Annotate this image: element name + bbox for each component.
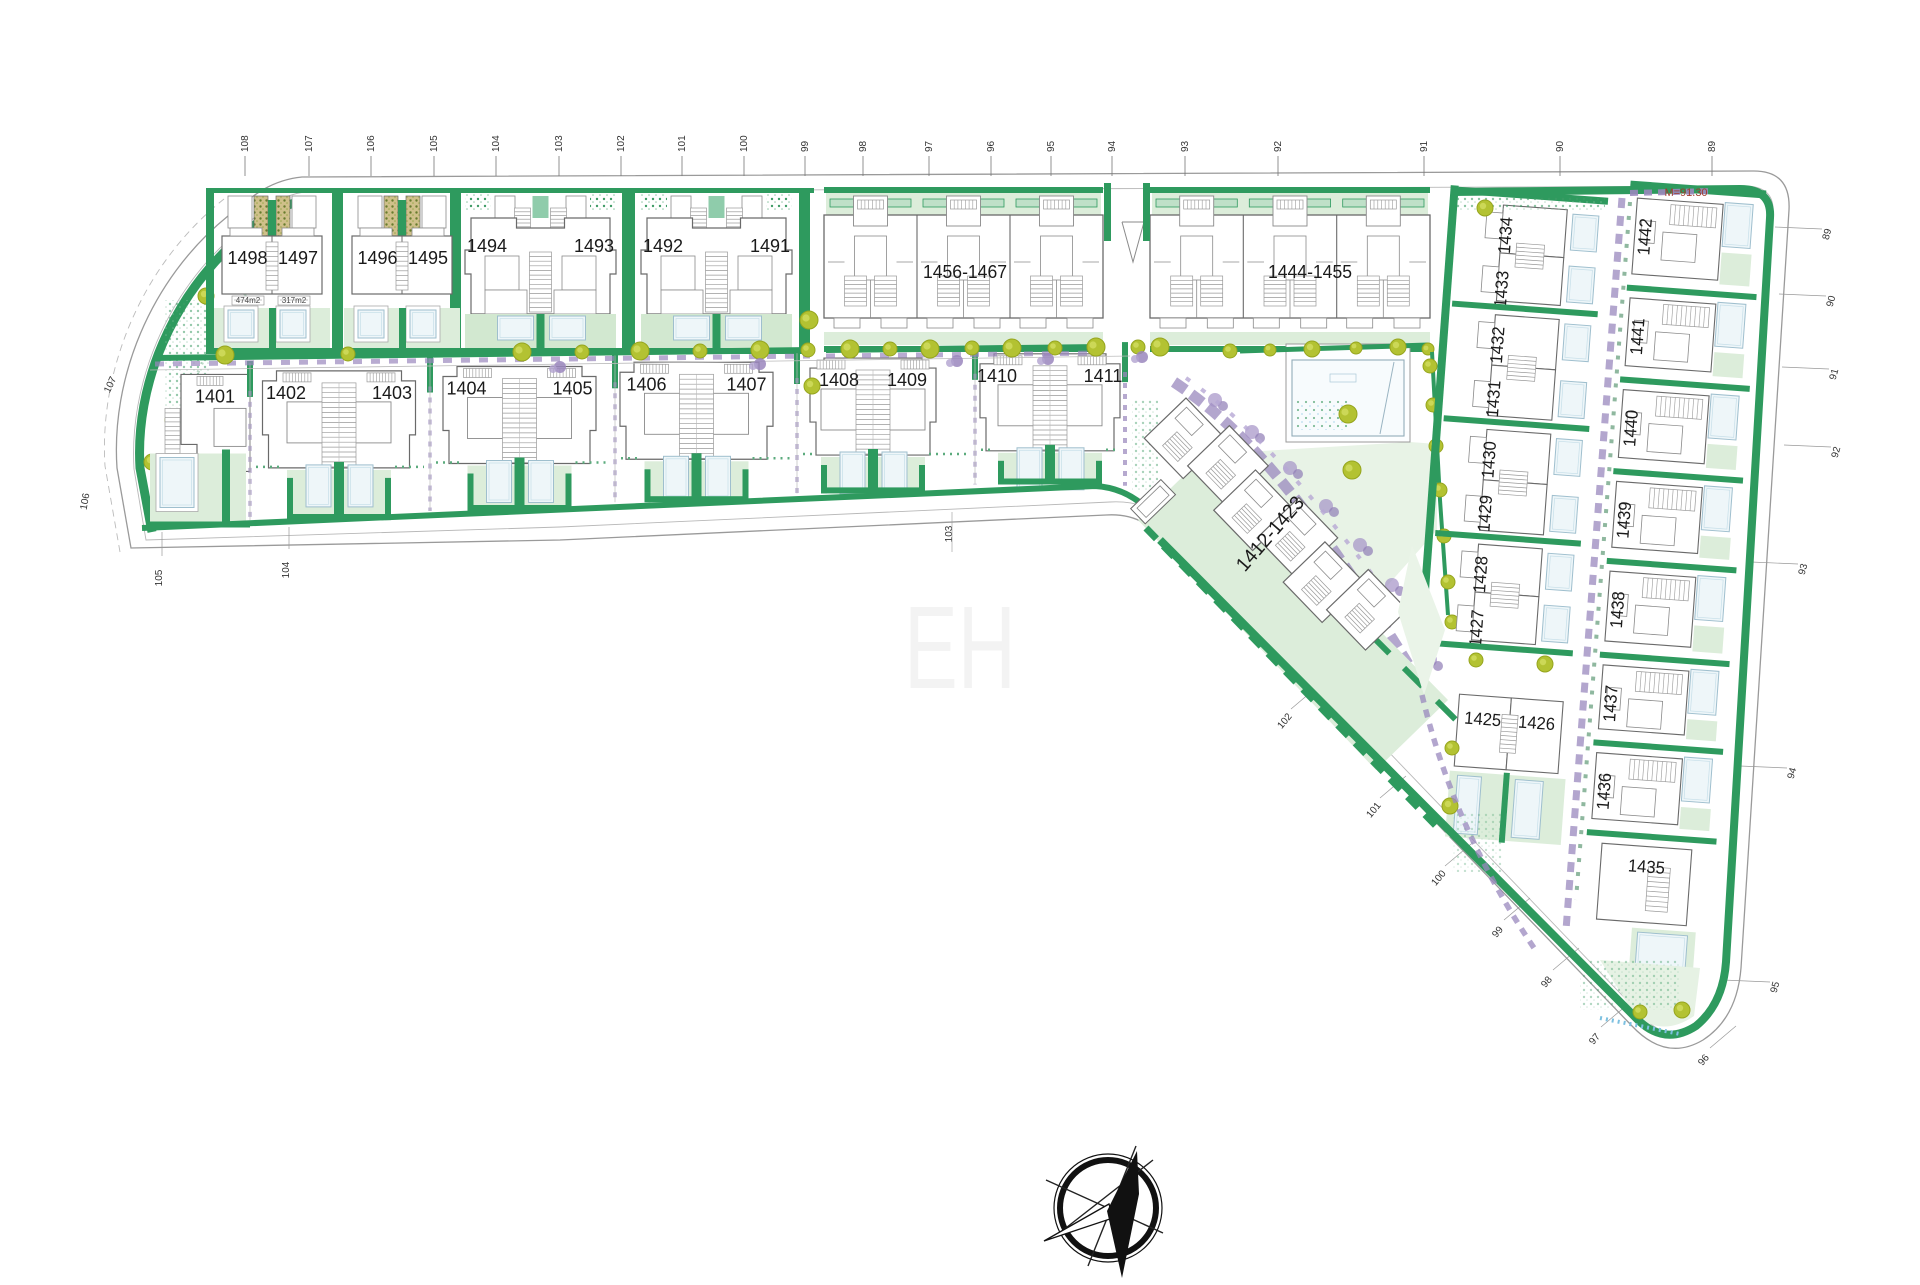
svg-text:1492: 1492 — [643, 236, 683, 256]
svg-text:1431: 1431 — [1482, 380, 1505, 418]
svg-text:1409: 1409 — [887, 370, 927, 390]
svg-text:1408: 1408 — [819, 370, 859, 390]
svg-text:1494: 1494 — [467, 236, 507, 256]
svg-text:89: 89 — [1707, 140, 1718, 152]
svg-text:1456-1467: 1456-1467 — [923, 262, 1007, 282]
svg-text:M=91.30: M=91.30 — [1664, 187, 1707, 199]
svg-text:1429: 1429 — [1473, 494, 1496, 532]
svg-text:101: 101 — [677, 135, 688, 152]
svg-text:474m2: 474m2 — [236, 296, 261, 305]
svg-text:107: 107 — [304, 135, 315, 152]
svg-text:103: 103 — [944, 525, 955, 542]
svg-text:EH: EH — [904, 582, 1016, 714]
svg-text:105: 105 — [429, 135, 440, 152]
svg-text:90: 90 — [1555, 140, 1566, 152]
svg-text:1410: 1410 — [977, 366, 1017, 386]
svg-text:1495: 1495 — [408, 248, 448, 268]
svg-text:104: 104 — [281, 561, 292, 578]
svg-text:100: 100 — [739, 135, 750, 152]
svg-text:99: 99 — [800, 140, 811, 152]
svg-text:1491: 1491 — [750, 236, 790, 256]
svg-text:1434: 1434 — [1494, 216, 1517, 255]
svg-text:104: 104 — [491, 135, 502, 152]
svg-text:1425: 1425 — [1464, 708, 1502, 731]
svg-text:103: 103 — [554, 135, 565, 152]
svg-text:1493: 1493 — [574, 236, 614, 256]
svg-text:1432: 1432 — [1486, 326, 1509, 364]
svg-text:94: 94 — [1107, 140, 1118, 152]
svg-text:1428: 1428 — [1469, 555, 1492, 593]
svg-text:1402: 1402 — [266, 383, 306, 403]
svg-text:105: 105 — [154, 569, 165, 586]
svg-text:1440: 1440 — [1619, 409, 1642, 448]
svg-text:1435: 1435 — [1627, 855, 1665, 878]
svg-text:95: 95 — [1046, 140, 1057, 152]
svg-text:1496: 1496 — [357, 248, 397, 268]
svg-text:96: 96 — [986, 140, 997, 152]
svg-text:1439: 1439 — [1612, 501, 1635, 539]
svg-text:98: 98 — [858, 140, 869, 152]
svg-text:91: 91 — [1419, 140, 1430, 152]
svg-text:92: 92 — [1273, 140, 1284, 152]
svg-text:1441: 1441 — [1626, 317, 1649, 355]
svg-text:1444-1455: 1444-1455 — [1268, 262, 1352, 282]
svg-text:1427: 1427 — [1465, 609, 1488, 647]
svg-text:1411: 1411 — [1084, 366, 1123, 386]
svg-text:106: 106 — [366, 135, 377, 152]
svg-text:1437: 1437 — [1599, 684, 1622, 722]
svg-text:1407: 1407 — [726, 374, 766, 394]
svg-text:108: 108 — [240, 135, 251, 152]
svg-text:1426: 1426 — [1517, 712, 1555, 735]
svg-text:1498: 1498 — [227, 248, 267, 268]
svg-text:1436: 1436 — [1593, 772, 1616, 810]
svg-text:97: 97 — [924, 140, 935, 152]
svg-text:1405: 1405 — [552, 379, 592, 399]
svg-text:1438: 1438 — [1606, 591, 1629, 629]
svg-text:93: 93 — [1180, 140, 1191, 152]
svg-text:1497: 1497 — [278, 248, 318, 268]
svg-text:1442: 1442 — [1633, 218, 1656, 256]
svg-text:1406: 1406 — [626, 374, 666, 394]
svg-text:102: 102 — [616, 135, 627, 152]
svg-text:1403: 1403 — [372, 383, 412, 403]
svg-text:317m2: 317m2 — [282, 296, 307, 305]
svg-text:1430: 1430 — [1477, 440, 1500, 479]
svg-text:1404: 1404 — [446, 379, 486, 399]
svg-text:1433: 1433 — [1490, 270, 1513, 308]
svg-text:1401: 1401 — [195, 386, 235, 406]
